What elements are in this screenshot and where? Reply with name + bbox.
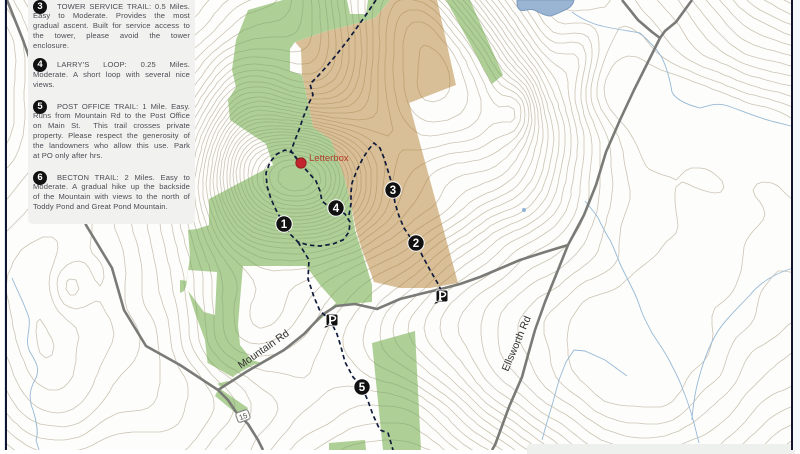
svg-text:5: 5: [359, 382, 366, 394]
svg-text:4: 4: [333, 203, 340, 215]
svg-text:Letterbox: Letterbox: [309, 153, 349, 164]
svg-text:2: 2: [413, 238, 419, 250]
svg-text:1: 1: [281, 219, 288, 231]
svg-text:3: 3: [390, 185, 396, 197]
